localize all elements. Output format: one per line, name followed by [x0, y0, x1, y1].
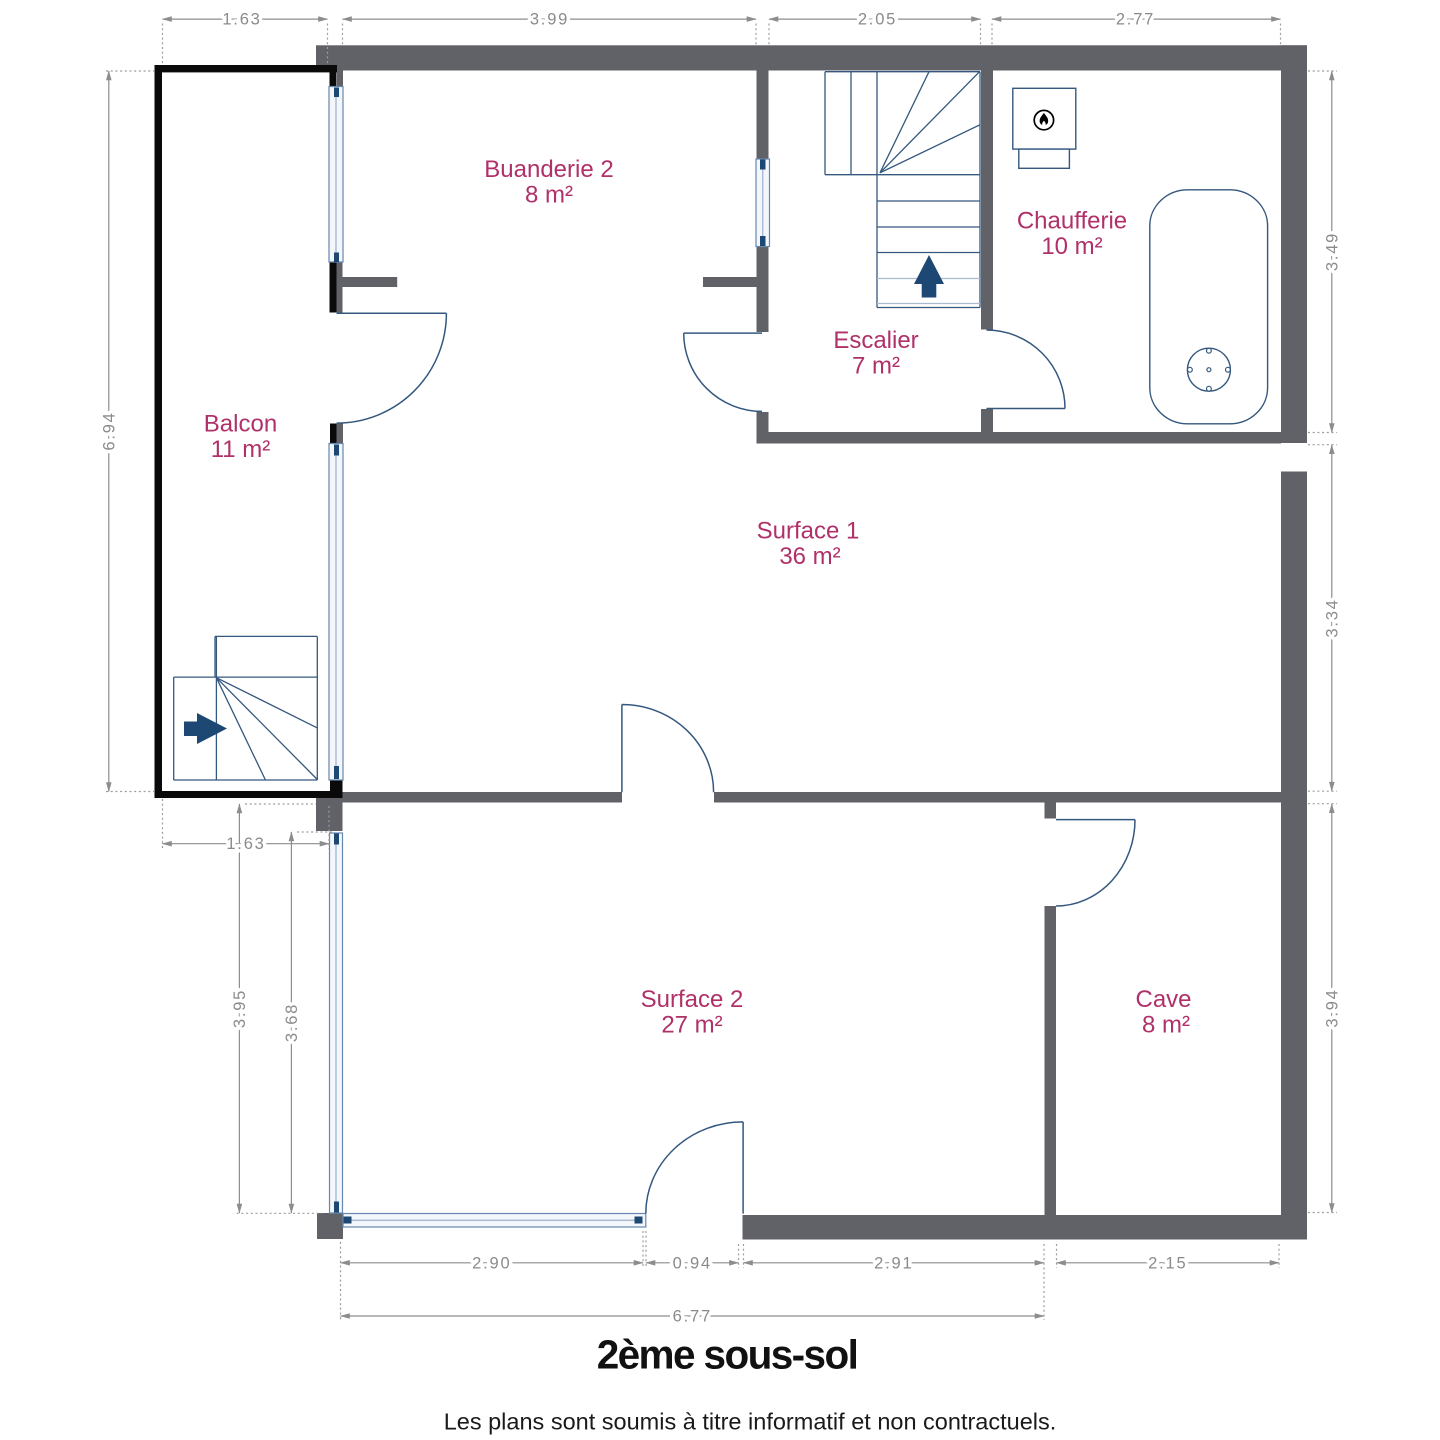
svg-text:Balcon: Balcon [204, 411, 277, 438]
svg-text:3.99: 3.99 [530, 11, 569, 29]
svg-text:1.63: 1.63 [226, 835, 265, 853]
svg-text:8 m²: 8 m² [525, 182, 573, 209]
svg-text:3.95: 3.95 [231, 989, 249, 1028]
svg-text:Escalier: Escalier [833, 327, 918, 354]
svg-text:3.94: 3.94 [1323, 988, 1341, 1027]
svg-text:36 m²: 36 m² [779, 543, 840, 570]
svg-text:Chaufferie: Chaufferie [1017, 208, 1127, 235]
svg-text:6.94: 6.94 [100, 411, 118, 450]
svg-text:8 m²: 8 m² [1142, 1012, 1190, 1039]
svg-text:Cave: Cave [1135, 986, 1191, 1013]
svg-text:10 m²: 10 m² [1041, 233, 1102, 260]
svg-text:2.91: 2.91 [874, 1254, 913, 1272]
svg-text:27 m²: 27 m² [661, 1012, 722, 1039]
svg-text:Surface 2: Surface 2 [641, 986, 744, 1013]
svg-text:3.34: 3.34 [1323, 598, 1341, 637]
svg-text:7 m²: 7 m² [852, 353, 900, 380]
svg-text:2.90: 2.90 [472, 1254, 511, 1272]
svg-text:1.63: 1.63 [222, 11, 261, 29]
svg-text:3.68: 3.68 [283, 1003, 301, 1042]
svg-text:11 m²: 11 m² [211, 436, 271, 463]
svg-text:0.94: 0.94 [673, 1254, 712, 1272]
svg-text:Buanderie 2: Buanderie 2 [484, 156, 613, 183]
svg-text:2.05: 2.05 [858, 11, 897, 29]
svg-text:2.15: 2.15 [1148, 1254, 1187, 1272]
svg-text:Surface 1: Surface 1 [757, 518, 860, 545]
svg-text:6.77: 6.77 [673, 1308, 712, 1326]
svg-text:2ème sous-sol: 2ème sous-sol [597, 1332, 858, 1378]
svg-text:3.49: 3.49 [1323, 232, 1341, 271]
svg-text:2.77: 2.77 [1116, 11, 1155, 29]
svg-text:Les plans sont soumis à titre: Les plans sont soumis à titre informatif… [444, 1409, 1057, 1435]
